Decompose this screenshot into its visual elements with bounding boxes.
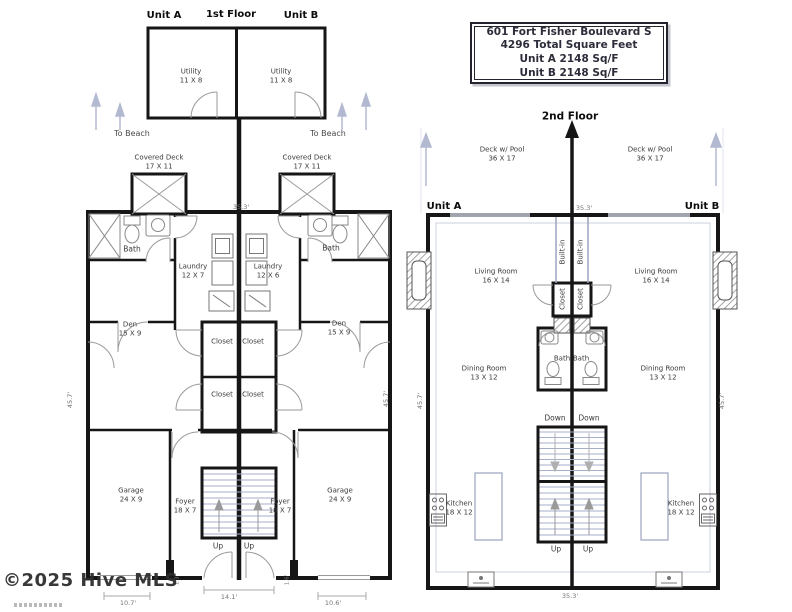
stairs-up-label-f1a: Up bbox=[213, 541, 223, 550]
floor1-unit-a-label: Unit A bbox=[147, 10, 182, 23]
stairs-up-label-f1b: Up bbox=[244, 541, 254, 550]
room-label-foyer-b: Foyer 18 X 7 bbox=[269, 497, 292, 515]
floor1-unit-b-label: Unit B bbox=[284, 10, 319, 23]
dim-f2-depth-right: 45.7' bbox=[718, 393, 726, 409]
room-label-utility-b: Utility 11 X 8 bbox=[270, 67, 293, 85]
property-info-box-inner: 601 Fort Fisher Boulevard S 4296 Total S… bbox=[474, 26, 664, 80]
room-label-built-in-b: Built-in bbox=[577, 240, 586, 265]
room-label-dining-a: Dining Room 13 X 12 bbox=[462, 364, 507, 382]
property-info-box: 601 Fort Fisher Boulevard S 4296 Total S… bbox=[470, 22, 668, 84]
room-label-built-in-a: Built-in bbox=[559, 240, 568, 265]
floor2-bottom-fixtures bbox=[468, 572, 682, 587]
stairs-down-label-b: Down bbox=[578, 413, 599, 422]
stairs-down-label-a: Down bbox=[544, 413, 565, 422]
room-label-closet-f2a: Closet bbox=[559, 288, 568, 310]
stairs-up-label-f2b: Up bbox=[583, 544, 593, 553]
dim-f2-width-top: 35.3' bbox=[576, 204, 592, 212]
floor2-unit-a-label: Unit A bbox=[427, 201, 462, 214]
room-label-bath-f2b: Bath bbox=[573, 355, 589, 364]
fine-print-watermark bbox=[14, 603, 64, 607]
floor1-to-beach-arrows bbox=[92, 94, 370, 130]
room-label-utility-a: Utility 11 X 8 bbox=[180, 67, 203, 85]
to-beach-label-right: To Beach bbox=[310, 129, 346, 139]
room-label-closet-2a: Closet bbox=[211, 391, 233, 400]
property-unit-a-sqft: Unit A 2148 Sq/F bbox=[475, 53, 663, 67]
room-label-garage-a: Garage 24 X 9 bbox=[118, 486, 144, 504]
room-label-closet-1a: Closet bbox=[211, 338, 233, 347]
room-label-kitchen-a: Kitchen 18 X 12 bbox=[445, 499, 472, 517]
dim-f1-stub-right: 1.6' bbox=[285, 575, 292, 585]
dim-f1-entry: 14.1' bbox=[221, 593, 237, 601]
stairs-up-label-f2a: Up bbox=[551, 544, 561, 553]
property-unit-b-sqft: Unit B 2148 Sq/F bbox=[475, 67, 663, 80]
dim-f1-depth-left: 45.7' bbox=[66, 392, 74, 408]
dim-f2-width-bottom: 35.3' bbox=[562, 592, 578, 600]
floor-plan-image: Unit A 1st Floor Unit B Utility 11 X 8 U… bbox=[0, 0, 792, 612]
room-label-laundry-b: Laundry 12 X 6 bbox=[254, 262, 283, 280]
dim-f1-depth-right: 45.7' bbox=[382, 391, 390, 407]
room-label-covered-deck-a: Covered Deck 17 X 11 bbox=[135, 153, 184, 171]
room-label-bath-f2a: Bath bbox=[554, 355, 570, 364]
property-address: 601 Fort Fisher Boulevard S bbox=[475, 26, 663, 39]
floor-plan-drawing bbox=[0, 0, 792, 612]
room-label-den-b: Den 15 X 9 bbox=[328, 319, 351, 337]
room-label-kitchen-b: Kitchen 18 X 12 bbox=[667, 499, 694, 517]
room-label-laundry-a: Laundry 12 X 7 bbox=[179, 262, 208, 280]
room-label-den-a: Den 15 X 9 bbox=[119, 320, 142, 338]
room-label-deck-a: Deck w/ Pool 36 X 17 bbox=[480, 145, 525, 163]
dim-f1-width-top: 35.3' bbox=[233, 203, 249, 211]
property-total-sqft: 4296 Total Square Feet bbox=[475, 39, 663, 53]
room-label-garage-b: Garage 24 X 9 bbox=[327, 486, 353, 504]
dim-f1-garage-door-left: 10.7' bbox=[120, 599, 136, 607]
room-label-dining-b: Dining Room 13 X 12 bbox=[641, 364, 686, 382]
mls-watermark: ©2025 Hive MLS bbox=[3, 570, 178, 591]
to-beach-label-left: To Beach bbox=[114, 129, 150, 139]
floor2-unit-b-label: Unit B bbox=[685, 201, 720, 214]
room-label-bath-b: Bath bbox=[322, 243, 339, 252]
room-label-bath-a: Bath bbox=[123, 244, 140, 253]
room-label-covered-deck-b: Covered Deck 17 X 11 bbox=[283, 153, 332, 171]
room-label-closet-f2b: Closet bbox=[577, 288, 586, 310]
floor2-title: 2nd Floor bbox=[542, 110, 598, 123]
room-label-deck-b: Deck w/ Pool 36 X 17 bbox=[628, 145, 673, 163]
room-label-closet-1b: Closet bbox=[242, 338, 264, 347]
room-label-living-b: Living Room 16 X 14 bbox=[635, 267, 678, 285]
dim-f1-garage-door-right: 10.6' bbox=[325, 599, 341, 607]
floor1-title: 1st Floor bbox=[206, 9, 256, 22]
dim-f2-depth-left: 45.7' bbox=[416, 393, 424, 409]
room-label-foyer-a: Foyer 18 X 7 bbox=[174, 497, 197, 515]
room-label-living-a: Living Room 16 X 14 bbox=[475, 267, 518, 285]
room-label-closet-2b: Closet bbox=[242, 391, 264, 400]
